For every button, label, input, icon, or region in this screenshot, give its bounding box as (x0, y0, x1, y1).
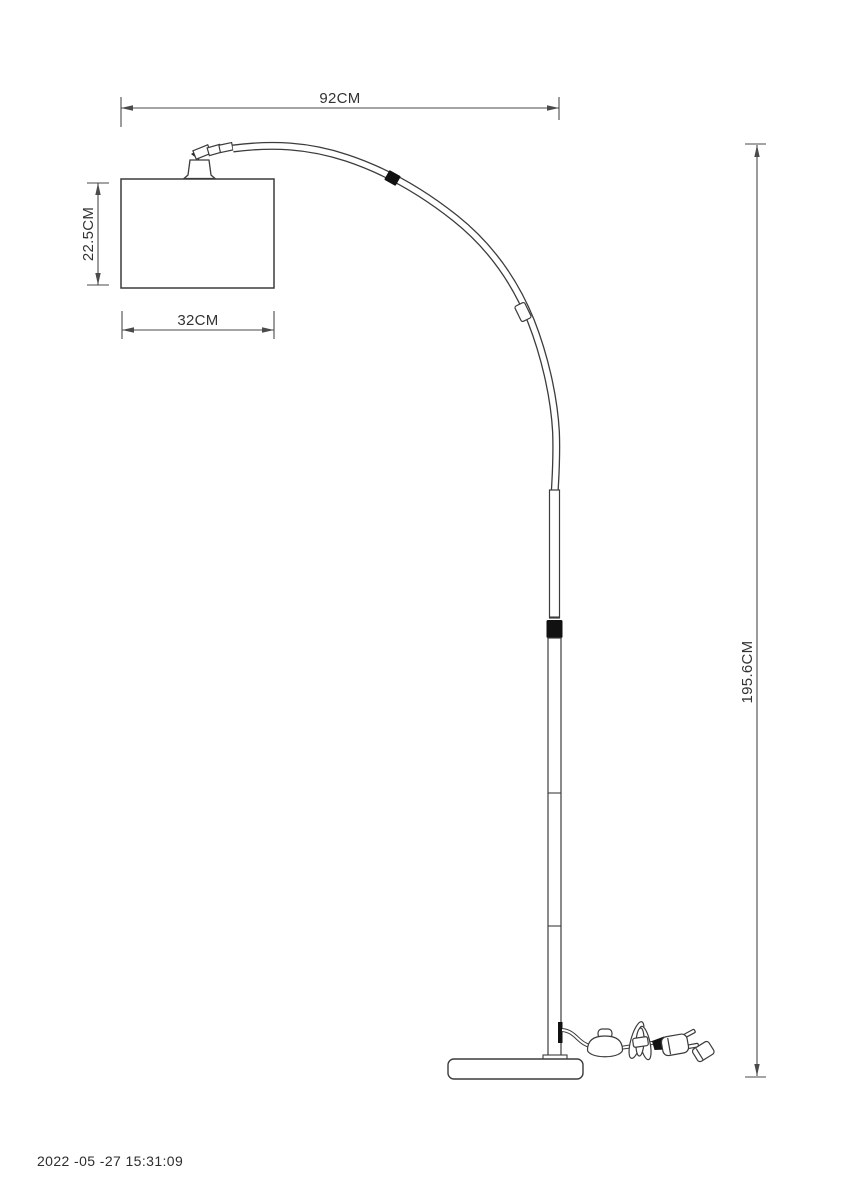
shade-holder (184, 160, 215, 179)
foot-switch-body (588, 1036, 623, 1057)
overall-width-label: 92CM (319, 90, 360, 107)
arrowhead-left-icon (121, 105, 133, 111)
arrowhead-down-icon (95, 273, 100, 285)
arc-joint-sleeve (514, 302, 531, 322)
overall-height-label: 195.6CM (739, 641, 756, 704)
height-adjust-knob (547, 620, 563, 638)
upper-pole (550, 490, 560, 618)
lamp-shade (121, 179, 274, 288)
cord-coil (626, 1020, 653, 1060)
floor-lamp-drawing (121, 143, 715, 1079)
foot-switch (588, 1029, 623, 1057)
floor-lamp-dimension-diagram: 92CM 22.5CM 32CM 195.6CM (0, 0, 848, 1200)
arrowhead-up-icon (95, 183, 100, 195)
arrowhead-right-icon (547, 105, 559, 111)
arrowhead-down-icon (754, 1064, 759, 1076)
arc-tube-core (233, 146, 556, 492)
lamp-base (448, 1059, 583, 1079)
arc-tube-outline (233, 146, 556, 492)
arrowhead-right-icon (262, 327, 274, 333)
timestamp: 2022 -05 -27 15:31:09 (37, 1153, 183, 1169)
arrowhead-left-icon (122, 327, 134, 333)
lower-pole (548, 638, 561, 1059)
technical-drawing-page: 92CM 22.5CM 32CM 195.6CM (0, 0, 848, 1200)
swivel-joint (193, 143, 233, 160)
plug-body (661, 1033, 690, 1056)
cord-outlet (558, 1022, 563, 1043)
overall-height-dimension (745, 144, 766, 1077)
shade-height-label: 22.5CM (80, 207, 97, 261)
arrowhead-up-icon (754, 145, 759, 157)
shade-width-label: 32CM (177, 312, 218, 329)
